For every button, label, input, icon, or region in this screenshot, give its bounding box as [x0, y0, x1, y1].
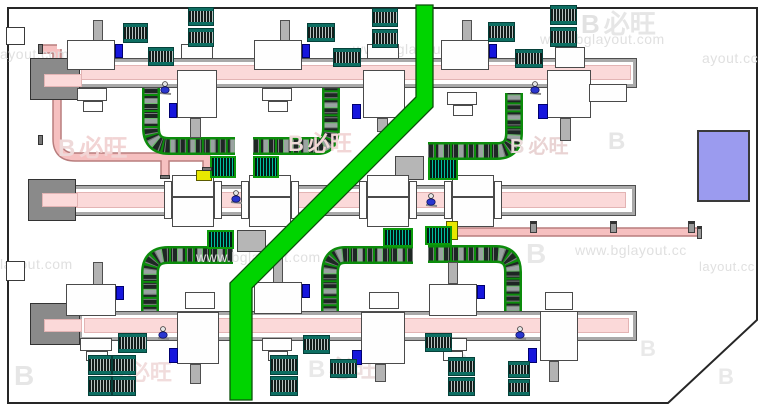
- worker-figure-2: [530, 82, 541, 94]
- worker-figure-6: [515, 327, 526, 339]
- worker-figure-4: [426, 194, 437, 206]
- worker-figure-3: [231, 191, 242, 203]
- worker-figure-5: [158, 327, 169, 339]
- factory-floor-plan: ayout.comwww.bglayout.comwww.bglayout.co…: [0, 0, 766, 415]
- aisle-and-workers-layer: [0, 0, 766, 415]
- green-aisle: [230, 5, 433, 400]
- worker-figure-1: [160, 82, 171, 94]
